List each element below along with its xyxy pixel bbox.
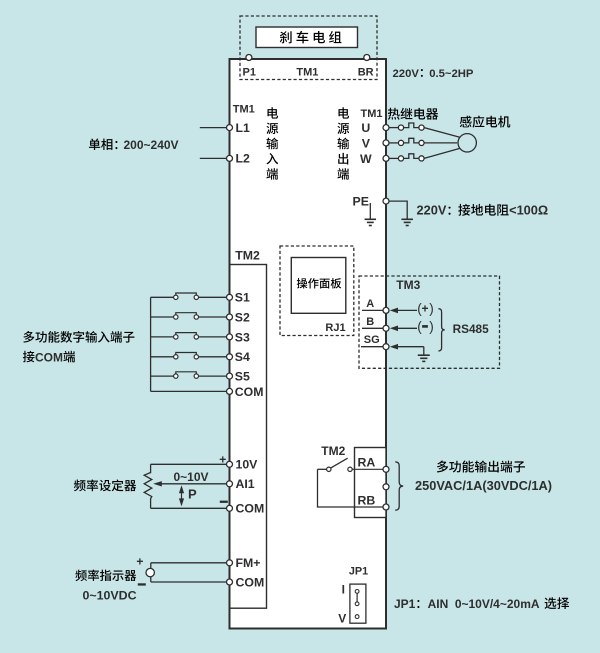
svg-text:200~240V: 200~240V <box>124 138 179 152</box>
svg-text:TM3: TM3 <box>396 278 420 292</box>
svg-text:RB: RB <box>358 493 376 507</box>
svg-text:S4: S4 <box>235 350 250 364</box>
svg-text:220V: 220V <box>417 203 447 218</box>
svg-text:TM1: TM1 <box>296 66 318 78</box>
svg-text:): ) <box>429 319 434 334</box>
svg-text:S1: S1 <box>235 291 250 305</box>
svg-text:TM1: TM1 <box>361 108 383 120</box>
svg-text:A: A <box>366 298 374 310</box>
svg-text:V: V <box>338 611 346 625</box>
svg-text:0.5~2HP: 0.5~2HP <box>429 68 474 80</box>
svg-text:I: I <box>342 582 345 596</box>
svg-text:(: ( <box>417 319 422 334</box>
svg-text:0~10V: 0~10V <box>174 470 209 484</box>
svg-text:RA: RA <box>358 455 376 469</box>
svg-text:TM2: TM2 <box>321 444 345 458</box>
svg-text:P1: P1 <box>243 66 256 78</box>
svg-text:BR: BR <box>358 66 374 78</box>
svg-text:0~10VDC: 0~10VDC <box>83 588 137 602</box>
svg-text:FM+: FM+ <box>236 556 261 570</box>
svg-text:S2: S2 <box>235 310 250 324</box>
svg-text:<100Ω: <100Ω <box>509 203 548 218</box>
svg-text:COM: COM <box>236 575 265 589</box>
svg-text:S3: S3 <box>235 330 250 344</box>
svg-text:SG: SG <box>364 334 380 346</box>
svg-text:TM2: TM2 <box>235 249 260 263</box>
svg-text:PE: PE <box>353 194 369 208</box>
svg-text:220V: 220V <box>393 68 420 80</box>
svg-text:U: U <box>361 121 370 135</box>
svg-text:W: W <box>360 152 372 166</box>
svg-text:250VAC/1A(30VDC/1A): 250VAC/1A(30VDC/1A) <box>415 478 552 493</box>
svg-text:JP1: JP1 <box>349 566 368 578</box>
svg-text:10V: 10V <box>236 458 259 472</box>
svg-text:P: P <box>188 487 197 502</box>
svg-text:AI1: AI1 <box>236 477 255 491</box>
svg-text:V: V <box>362 136 371 150</box>
svg-text:): ) <box>429 301 434 316</box>
svg-text:S5: S5 <box>235 370 250 384</box>
svg-text:JP1: JP1 <box>394 597 416 611</box>
svg-text:+: + <box>422 302 429 316</box>
svg-text:COM: COM <box>236 502 265 516</box>
svg-text:B: B <box>366 316 374 328</box>
svg-text:RJ1: RJ1 <box>325 322 345 334</box>
svg-text:L2: L2 <box>236 152 251 166</box>
svg-text:0~10V/4~20mA: 0~10V/4~20mA <box>455 597 540 611</box>
svg-text:+: + <box>136 554 143 568</box>
svg-text:COM: COM <box>35 350 63 364</box>
svg-text:L1: L1 <box>236 121 251 135</box>
svg-text:AIN: AIN <box>428 597 449 611</box>
svg-text:COM: COM <box>235 385 264 399</box>
svg-text:RS485: RS485 <box>453 322 490 336</box>
svg-text:TM1: TM1 <box>233 104 255 116</box>
